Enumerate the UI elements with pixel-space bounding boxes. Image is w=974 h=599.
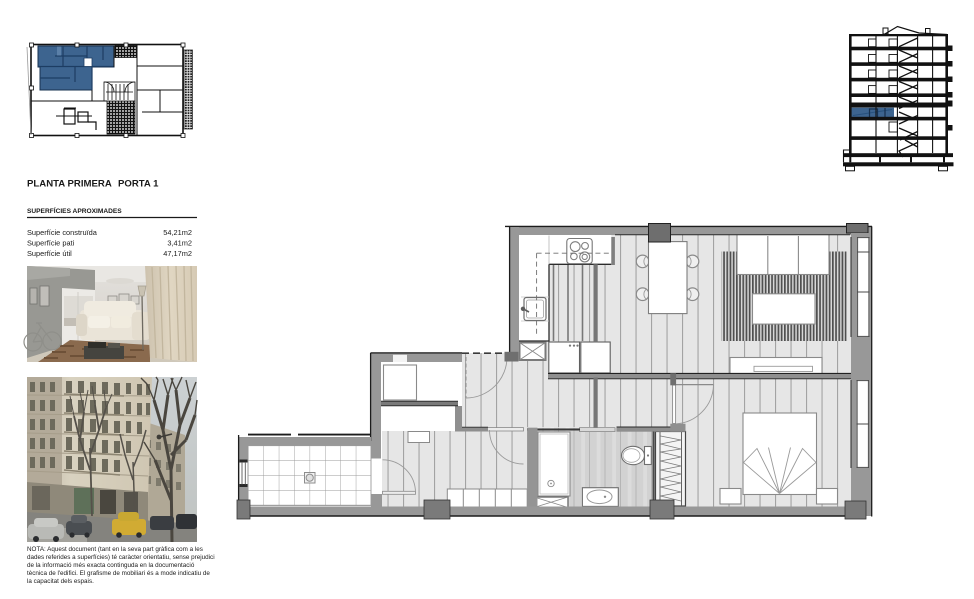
svg-text:la capacitat dels espais.: la capacitat dels espais. <box>27 578 94 585</box>
svg-text:54,21m2: 54,21m2 <box>163 228 192 237</box>
svg-text:PORTA 1: PORTA 1 <box>118 179 159 190</box>
svg-text:Superfície pati: Superfície pati <box>27 239 75 248</box>
svg-text:Superfície construïda: Superfície construïda <box>27 228 98 237</box>
svg-text:3,41m2: 3,41m2 <box>167 239 192 248</box>
svg-text:47,17m2: 47,17m2 <box>163 249 192 258</box>
svg-text:PLANTA PRIMERA: PLANTA PRIMERA <box>27 179 112 190</box>
svg-text:NOTA: Aquest document (tant en: NOTA: Aquest document (tant en la seva p… <box>27 546 203 553</box>
svg-text:tècnica de l'edifici. El grafi: tècnica de l'edifici. El grafisme de mob… <box>27 570 210 577</box>
svg-text:dades referides a superfícies): dades referides a superfícies) té caràct… <box>27 554 215 561</box>
svg-text:SUPERFÍCIES APROXIMADES: SUPERFÍCIES APROXIMADES <box>27 206 122 215</box>
svg-text:Superfície útil: Superfície útil <box>27 249 72 258</box>
svg-text:de la informació més exacta co: de la informació més exacta continguda e… <box>27 562 195 569</box>
